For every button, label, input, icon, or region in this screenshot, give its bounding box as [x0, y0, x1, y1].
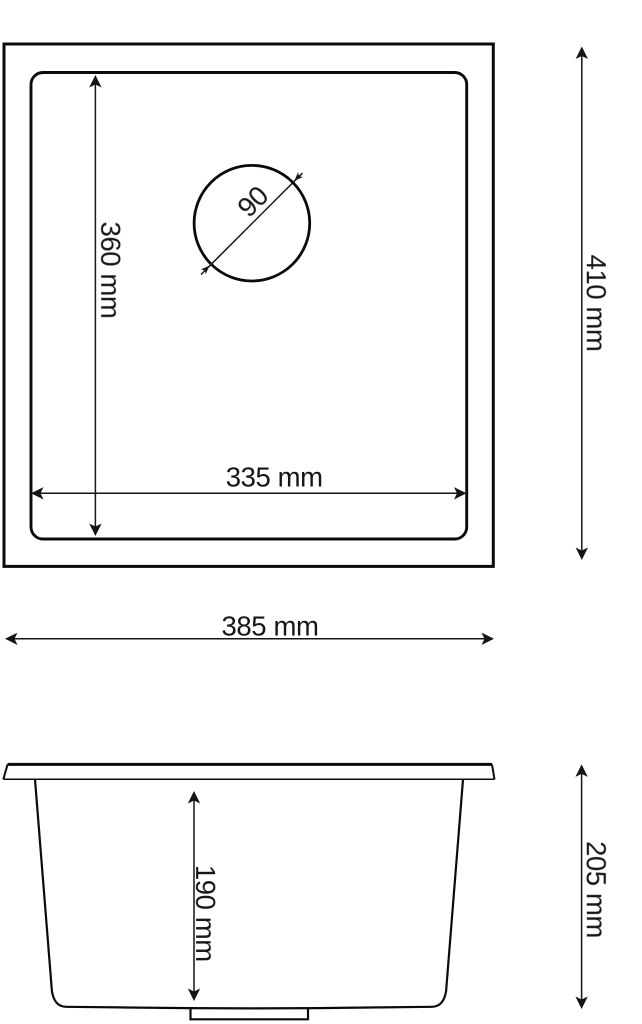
- svg-text:410 mm: 410 mm: [581, 255, 612, 352]
- svg-text:335 mm: 335 mm: [226, 462, 323, 493]
- svg-text:360 mm: 360 mm: [95, 222, 126, 319]
- svg-text:205 mm: 205 mm: [581, 841, 612, 938]
- svg-text:385 mm: 385 mm: [222, 610, 319, 641]
- svg-text:190 mm: 190 mm: [190, 865, 221, 962]
